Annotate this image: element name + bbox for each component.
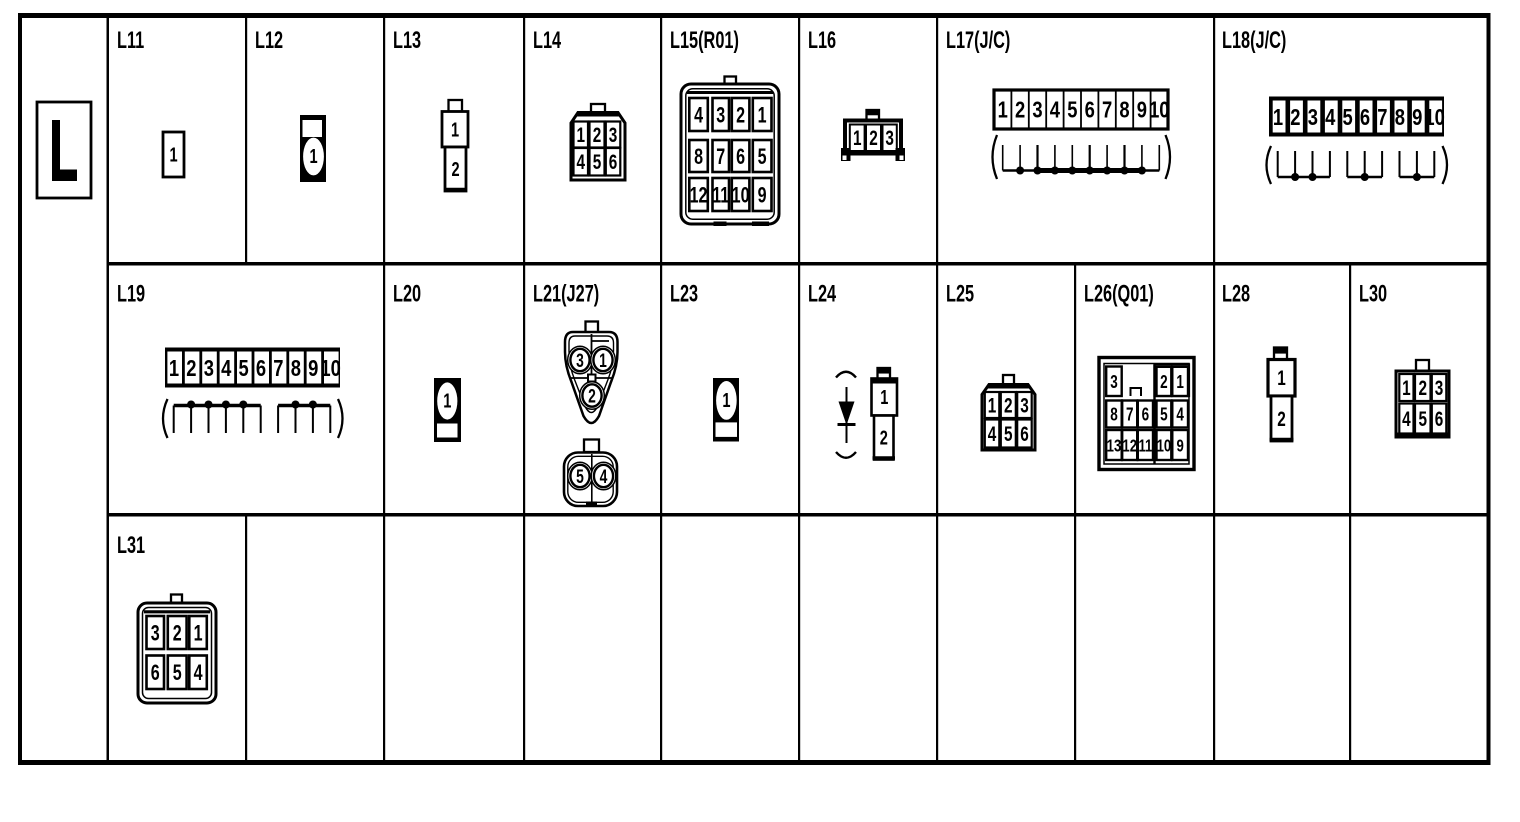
svg-text:9: 9	[758, 184, 767, 208]
svg-text:L14: L14	[533, 27, 562, 54]
svg-text:5: 5	[1418, 407, 1427, 431]
svg-text:1: 1	[1176, 372, 1184, 393]
svg-text:1: 1	[169, 143, 177, 166]
svg-text:5: 5	[593, 150, 602, 174]
svg-text:2: 2	[451, 158, 459, 181]
svg-text:9: 9	[1137, 98, 1147, 123]
svg-text:4: 4	[221, 356, 232, 381]
svg-text:2: 2	[736, 104, 745, 128]
svg-text:4: 4	[1325, 105, 1336, 130]
svg-text:L12: L12	[255, 27, 283, 54]
svg-text:1: 1	[309, 145, 317, 168]
svg-text:2: 2	[1004, 393, 1013, 417]
svg-text:6: 6	[256, 356, 266, 381]
svg-text:4: 4	[576, 150, 585, 174]
svg-text:3: 3	[1308, 105, 1318, 130]
svg-text:5: 5	[173, 662, 182, 686]
svg-text:3: 3	[1020, 393, 1029, 417]
svg-text:3: 3	[1032, 98, 1042, 123]
svg-text:4: 4	[694, 104, 703, 128]
svg-text:11: 11	[1138, 437, 1152, 456]
svg-text:6: 6	[1085, 98, 1095, 123]
svg-text:1: 1	[1277, 366, 1286, 390]
svg-text:1: 1	[722, 389, 730, 412]
svg-text:L11: L11	[117, 27, 144, 54]
svg-text:L19: L19	[117, 280, 145, 307]
svg-text:10: 10	[1149, 98, 1169, 123]
svg-text:8: 8	[694, 146, 703, 170]
svg-text:7: 7	[273, 356, 283, 381]
svg-text:7: 7	[716, 146, 725, 170]
svg-text:6: 6	[1020, 422, 1029, 446]
svg-text:4: 4	[600, 466, 608, 488]
svg-text:6: 6	[1435, 407, 1444, 431]
svg-text:1: 1	[194, 622, 203, 646]
svg-text:2: 2	[1160, 372, 1168, 393]
svg-text:4: 4	[988, 422, 997, 446]
svg-text:L26(Q01): L26(Q01)	[1084, 280, 1154, 307]
svg-text:8: 8	[1119, 98, 1129, 123]
svg-text:9: 9	[1176, 437, 1184, 456]
svg-text:3: 3	[576, 350, 584, 372]
svg-text:7: 7	[1102, 98, 1112, 123]
svg-text:L28: L28	[1222, 280, 1250, 307]
svg-text:1: 1	[1402, 376, 1411, 400]
svg-text:L21(J27): L21(J27)	[533, 280, 599, 307]
svg-text:9: 9	[1412, 105, 1422, 130]
svg-text:1: 1	[880, 386, 888, 409]
svg-text:7: 7	[1126, 405, 1134, 426]
svg-text:12: 12	[690, 184, 708, 208]
svg-text:1: 1	[988, 393, 997, 417]
svg-text:2: 2	[1015, 98, 1025, 123]
svg-text:4: 4	[1050, 98, 1061, 123]
svg-text:2: 2	[173, 622, 182, 646]
svg-text:1: 1	[1273, 105, 1283, 130]
svg-text:1: 1	[998, 98, 1008, 123]
svg-text:2: 2	[588, 385, 596, 407]
svg-text:10: 10	[1424, 105, 1444, 130]
svg-text:10: 10	[732, 184, 750, 208]
svg-text:3: 3	[1110, 372, 1118, 393]
svg-text:6: 6	[151, 662, 160, 686]
svg-text:2: 2	[869, 126, 878, 150]
svg-text:11: 11	[712, 184, 729, 208]
svg-text:L30: L30	[1359, 280, 1387, 307]
svg-text:5: 5	[1160, 405, 1168, 426]
svg-text:3: 3	[204, 356, 214, 381]
svg-text:1: 1	[451, 118, 459, 141]
svg-text:5: 5	[1004, 422, 1013, 446]
svg-text:1: 1	[758, 104, 767, 128]
svg-text:3: 3	[151, 622, 160, 646]
svg-text:L25: L25	[946, 280, 974, 307]
svg-text:3: 3	[609, 123, 618, 147]
svg-text:6: 6	[609, 150, 618, 174]
svg-text:2: 2	[880, 426, 888, 449]
svg-text:1: 1	[599, 350, 607, 372]
svg-text:5: 5	[576, 466, 584, 488]
svg-text:6: 6	[1142, 405, 1150, 426]
svg-text:7: 7	[1377, 105, 1387, 130]
svg-text:3: 3	[885, 126, 894, 150]
svg-text:2: 2	[1418, 376, 1427, 400]
svg-text:10: 10	[320, 356, 340, 381]
svg-text:2: 2	[1290, 105, 1300, 130]
svg-text:4: 4	[1402, 407, 1411, 431]
svg-text:2: 2	[593, 123, 602, 147]
svg-text:1: 1	[853, 126, 862, 150]
svg-text:5: 5	[758, 146, 767, 170]
svg-text:10: 10	[1157, 437, 1172, 456]
svg-text:3: 3	[1435, 376, 1444, 400]
svg-text:L18(J/C): L18(J/C)	[1222, 27, 1286, 54]
svg-text:1: 1	[443, 389, 451, 412]
svg-text:L17(J/C): L17(J/C)	[946, 27, 1010, 54]
svg-text:4: 4	[194, 662, 203, 686]
svg-text:2: 2	[186, 356, 196, 381]
svg-text:5: 5	[238, 356, 248, 381]
svg-text:3: 3	[716, 104, 725, 128]
svg-text:8: 8	[1110, 405, 1118, 426]
svg-text:L31: L31	[117, 532, 145, 559]
svg-text:2: 2	[1277, 407, 1286, 431]
svg-text:12: 12	[1122, 437, 1137, 456]
svg-text:L13: L13	[393, 27, 421, 54]
svg-text:6: 6	[736, 146, 745, 170]
svg-text:L20: L20	[393, 280, 421, 307]
svg-text:4: 4	[1176, 405, 1184, 426]
svg-text:6: 6	[1360, 105, 1370, 130]
svg-text:1: 1	[169, 356, 179, 381]
svg-text:L16: L16	[808, 27, 836, 54]
svg-text:9: 9	[308, 356, 318, 381]
svg-text:8: 8	[1395, 105, 1405, 130]
svg-text:L23: L23	[670, 280, 698, 307]
svg-text:L15(R01): L15(R01)	[670, 27, 739, 54]
svg-text:1: 1	[576, 123, 585, 147]
svg-text:8: 8	[291, 356, 301, 381]
svg-text:5: 5	[1342, 105, 1352, 130]
svg-text:5: 5	[1067, 98, 1077, 123]
svg-text:13: 13	[1107, 437, 1122, 456]
svg-text:L24: L24	[808, 280, 837, 307]
